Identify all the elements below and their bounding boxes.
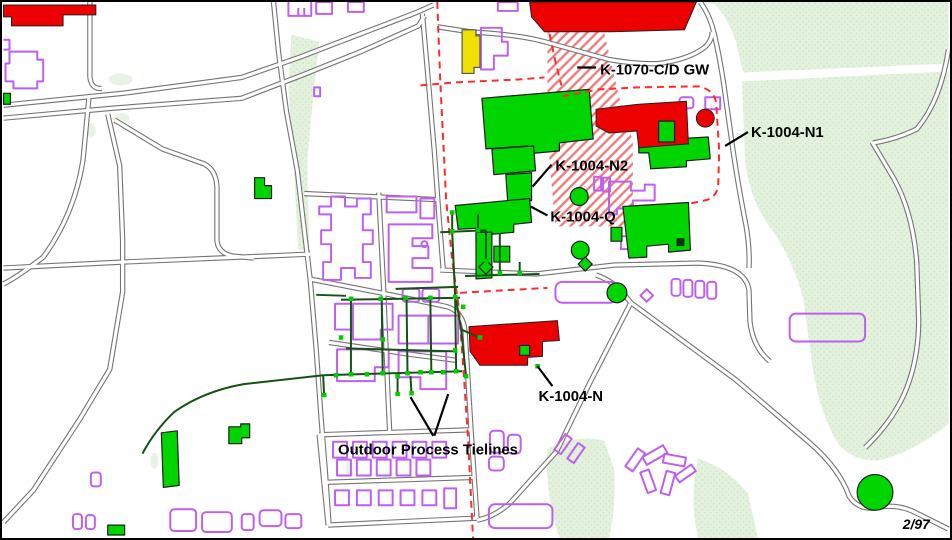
building (520, 345, 530, 355)
building-outline (73, 514, 82, 529)
building-outline (316, 2, 332, 14)
building-outline (705, 97, 720, 109)
building (506, 173, 532, 203)
building-outline (242, 514, 254, 530)
building-yellow (462, 30, 480, 74)
building-outline (672, 279, 681, 296)
building-outline (707, 282, 716, 299)
building-outline (640, 289, 653, 302)
building-outline (314, 87, 320, 96)
building-outline (260, 510, 282, 526)
building-outline (6, 52, 44, 89)
building-round (696, 109, 714, 127)
building-outline (170, 509, 196, 531)
vegetation-patch (109, 73, 133, 85)
leader-k1004n (538, 366, 553, 386)
label-k1004n1: K-1004-N1 (751, 125, 824, 141)
building-outline (285, 514, 301, 528)
tieline (341, 298, 460, 300)
label-k1004n2: K-1004-N2 (555, 159, 628, 175)
building-outline (489, 457, 504, 471)
map-canvas: K-1070-C/D GW K-1004-N1 K-1004-N2 K-1004… (2, 2, 950, 538)
label-k1004n: K-1004-N (539, 389, 603, 405)
boundary-line (460, 288, 547, 293)
vegetation-patch (150, 453, 158, 469)
leader-k1004q (531, 206, 548, 215)
building-outline (86, 515, 95, 529)
building (492, 146, 536, 175)
tree-circle (570, 188, 588, 206)
building-outline (489, 504, 553, 528)
building-outline (421, 241, 427, 247)
tree-circle (607, 283, 627, 303)
tree-circle (571, 241, 589, 259)
building (623, 203, 690, 259)
building-outline (202, 512, 232, 532)
building (659, 121, 675, 142)
tieline (351, 297, 456, 375)
building (108, 525, 125, 535)
building (229, 424, 250, 444)
label-k1070: K-1070-C/D GW (600, 62, 710, 78)
building-outline (337, 349, 389, 381)
building-k1004q (455, 199, 531, 242)
boundary-line (420, 77, 544, 85)
building-outline (683, 280, 692, 297)
label-tielines: Outdoor Process Tielines (338, 443, 518, 459)
building (161, 431, 179, 488)
building (255, 178, 272, 199)
site-map: K-1070-C/D GW K-1004-N1 K-1004-N2 K-1004… (0, 0, 952, 540)
forest-bottom-right (693, 459, 758, 538)
label-k1004q: K-1004-Q (550, 209, 615, 225)
forest-top-right (700, 2, 948, 72)
building (4, 5, 96, 26)
building-k1004n (469, 321, 559, 366)
building-outline (288, 2, 311, 16)
building (611, 227, 622, 241)
building-outline (348, 2, 364, 12)
tree-circle-large (857, 474, 893, 510)
building (494, 246, 510, 262)
building-outline-h-complex (319, 197, 373, 280)
building (4, 93, 11, 104)
building-outline (91, 472, 101, 486)
date-stamp: 2/97 (902, 516, 931, 532)
building-outline (4, 40, 10, 50)
building-courtyard (677, 238, 685, 246)
building-outline (498, 2, 518, 11)
building-outline (695, 281, 704, 298)
building-outline-e-complex (389, 224, 433, 282)
building (530, 2, 697, 32)
